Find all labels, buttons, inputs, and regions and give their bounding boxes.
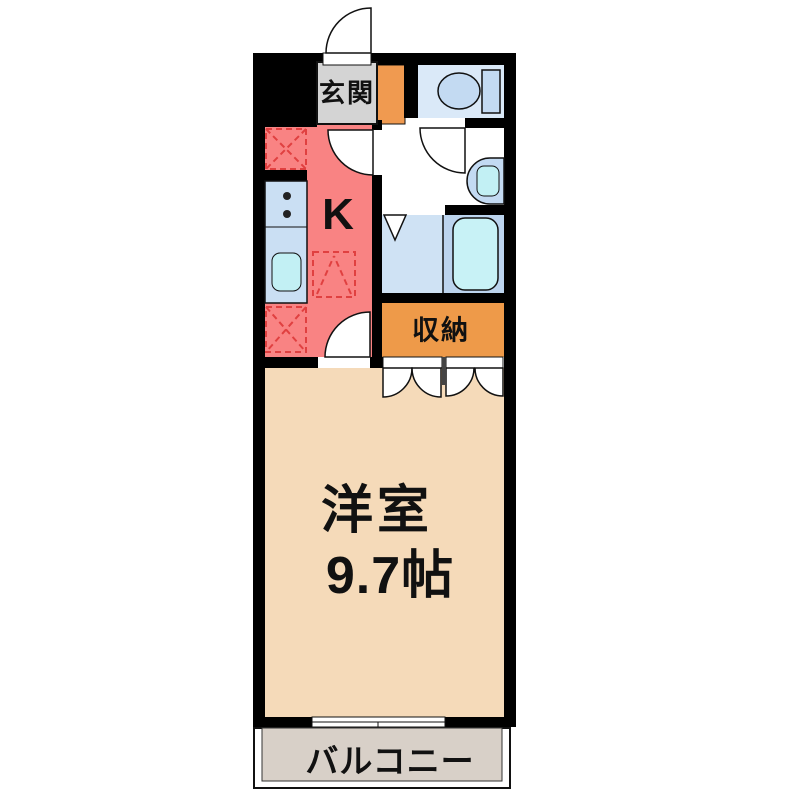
wall-counter-divider xyxy=(265,170,307,181)
toilet-icon xyxy=(438,73,480,109)
wall-top xyxy=(253,53,516,65)
label-entrance: 玄関 xyxy=(319,80,375,106)
floor-plan: 玄関 K 収納 洋室 9.7帖 バルコニー xyxy=(0,0,800,800)
wall-toilet-left xyxy=(404,65,418,118)
wall-left xyxy=(253,53,265,727)
toilet-tank-icon xyxy=(482,70,500,113)
floor-plan-drawing xyxy=(0,0,800,800)
room-main xyxy=(265,368,504,717)
closet-door-lintel xyxy=(383,357,442,368)
wall-bath-storage xyxy=(382,293,504,303)
label-main-room: 洋室 xyxy=(321,485,433,537)
closet-door-lintel xyxy=(446,357,503,368)
label-kitchen: K xyxy=(322,193,354,237)
label-balcony: バルコニー xyxy=(305,745,474,778)
washbasin-bowl-icon xyxy=(477,166,499,196)
label-main-room-size: 9.7帖 xyxy=(326,550,454,602)
wall-kitchen-room-right xyxy=(370,357,383,368)
stove-icon xyxy=(283,210,291,218)
entrance-door-swing xyxy=(326,8,371,53)
sliding-window xyxy=(312,717,445,727)
label-storage: 収納 xyxy=(412,318,470,345)
wall-right xyxy=(504,53,516,727)
opening-bathroom xyxy=(382,205,445,215)
stove-icon xyxy=(283,192,291,200)
wall-kitchen-room-left xyxy=(253,357,318,368)
wall-washroom-bath xyxy=(445,205,504,215)
entrance-door-sill xyxy=(323,53,371,65)
kitchen-sink-icon xyxy=(272,253,301,291)
opening-toilet xyxy=(418,118,465,128)
opening-kitchen-room xyxy=(318,357,370,368)
entrance-side-cabinet xyxy=(377,65,405,124)
wall-below-toilet xyxy=(465,118,504,128)
wall-block-topleft xyxy=(265,65,317,127)
bathtub-icon xyxy=(453,218,498,290)
closet-door-post xyxy=(442,357,446,385)
